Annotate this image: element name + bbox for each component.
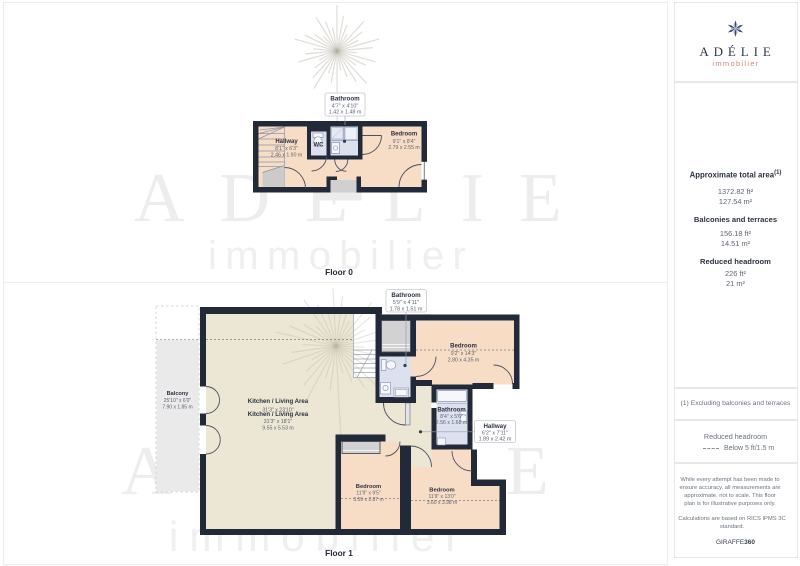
svg-text:Kitchen / Living Area: Kitchen / Living Area — [248, 411, 309, 418]
svg-text:25'10" x 6'0": 25'10" x 6'0" — [164, 398, 192, 404]
svg-text:3.59 x 2.87 m: 3.59 x 2.87 m — [353, 497, 383, 503]
svg-text:Bedroom: Bedroom — [391, 132, 417, 138]
svg-text:WC: WC — [314, 143, 325, 149]
svg-text:5'9" x 4'11": 5'9" x 4'11" — [393, 300, 419, 306]
svg-text:Kitchen / Living Area: Kitchen / Living Area — [248, 398, 309, 405]
svg-text:2.46 x 1.90 m: 2.46 x 1.90 m — [271, 152, 302, 158]
svg-text:8'1" x 6'3": 8'1" x 6'3" — [275, 146, 298, 152]
svg-text:1.78 x 1.51 m: 1.78 x 1.51 m — [390, 306, 423, 312]
svg-text:Hallway: Hallway — [275, 139, 298, 145]
svg-text:9'2" x 14'3": 9'2" x 14'3" — [451, 351, 477, 357]
svg-text:1.89 x 2.42 m: 1.89 x 2.42 m — [479, 436, 512, 442]
svg-text:Bathroom: Bathroom — [391, 292, 421, 299]
svg-text:2.80 x 4.35 m: 2.80 x 4.35 m — [448, 358, 479, 364]
svg-text:Bathroom: Bathroom — [437, 407, 465, 413]
svg-text:7.90 x 1.85 m: 7.90 x 1.85 m — [162, 404, 192, 410]
svg-text:2.56 x 1.68 m: 2.56 x 1.68 m — [436, 420, 467, 426]
svg-text:Hallway: Hallway — [483, 423, 507, 430]
svg-text:Bedroom: Bedroom — [429, 488, 454, 494]
svg-text:31'3" x 18'1": 31'3" x 18'1" — [264, 419, 293, 425]
svg-text:2.79 x 2.55 m: 2.79 x 2.55 m — [388, 145, 419, 151]
svg-text:11'9" x 9'5": 11'9" x 9'5" — [356, 491, 380, 497]
svg-text:9.55 x 5.53 m: 9.55 x 5.53 m — [262, 426, 293, 432]
svg-text:Bedroom: Bedroom — [356, 484, 381, 490]
svg-text:Balcony: Balcony — [167, 391, 190, 397]
svg-text:Bathroom: Bathroom — [330, 96, 360, 103]
svg-text:3.60 x 3.98 m: 3.60 x 3.98 m — [427, 500, 457, 506]
svg-text:1.42 x 1.48 m: 1.42 x 1.48 m — [329, 110, 362, 116]
svg-text:Bedroom: Bedroom — [450, 343, 477, 350]
